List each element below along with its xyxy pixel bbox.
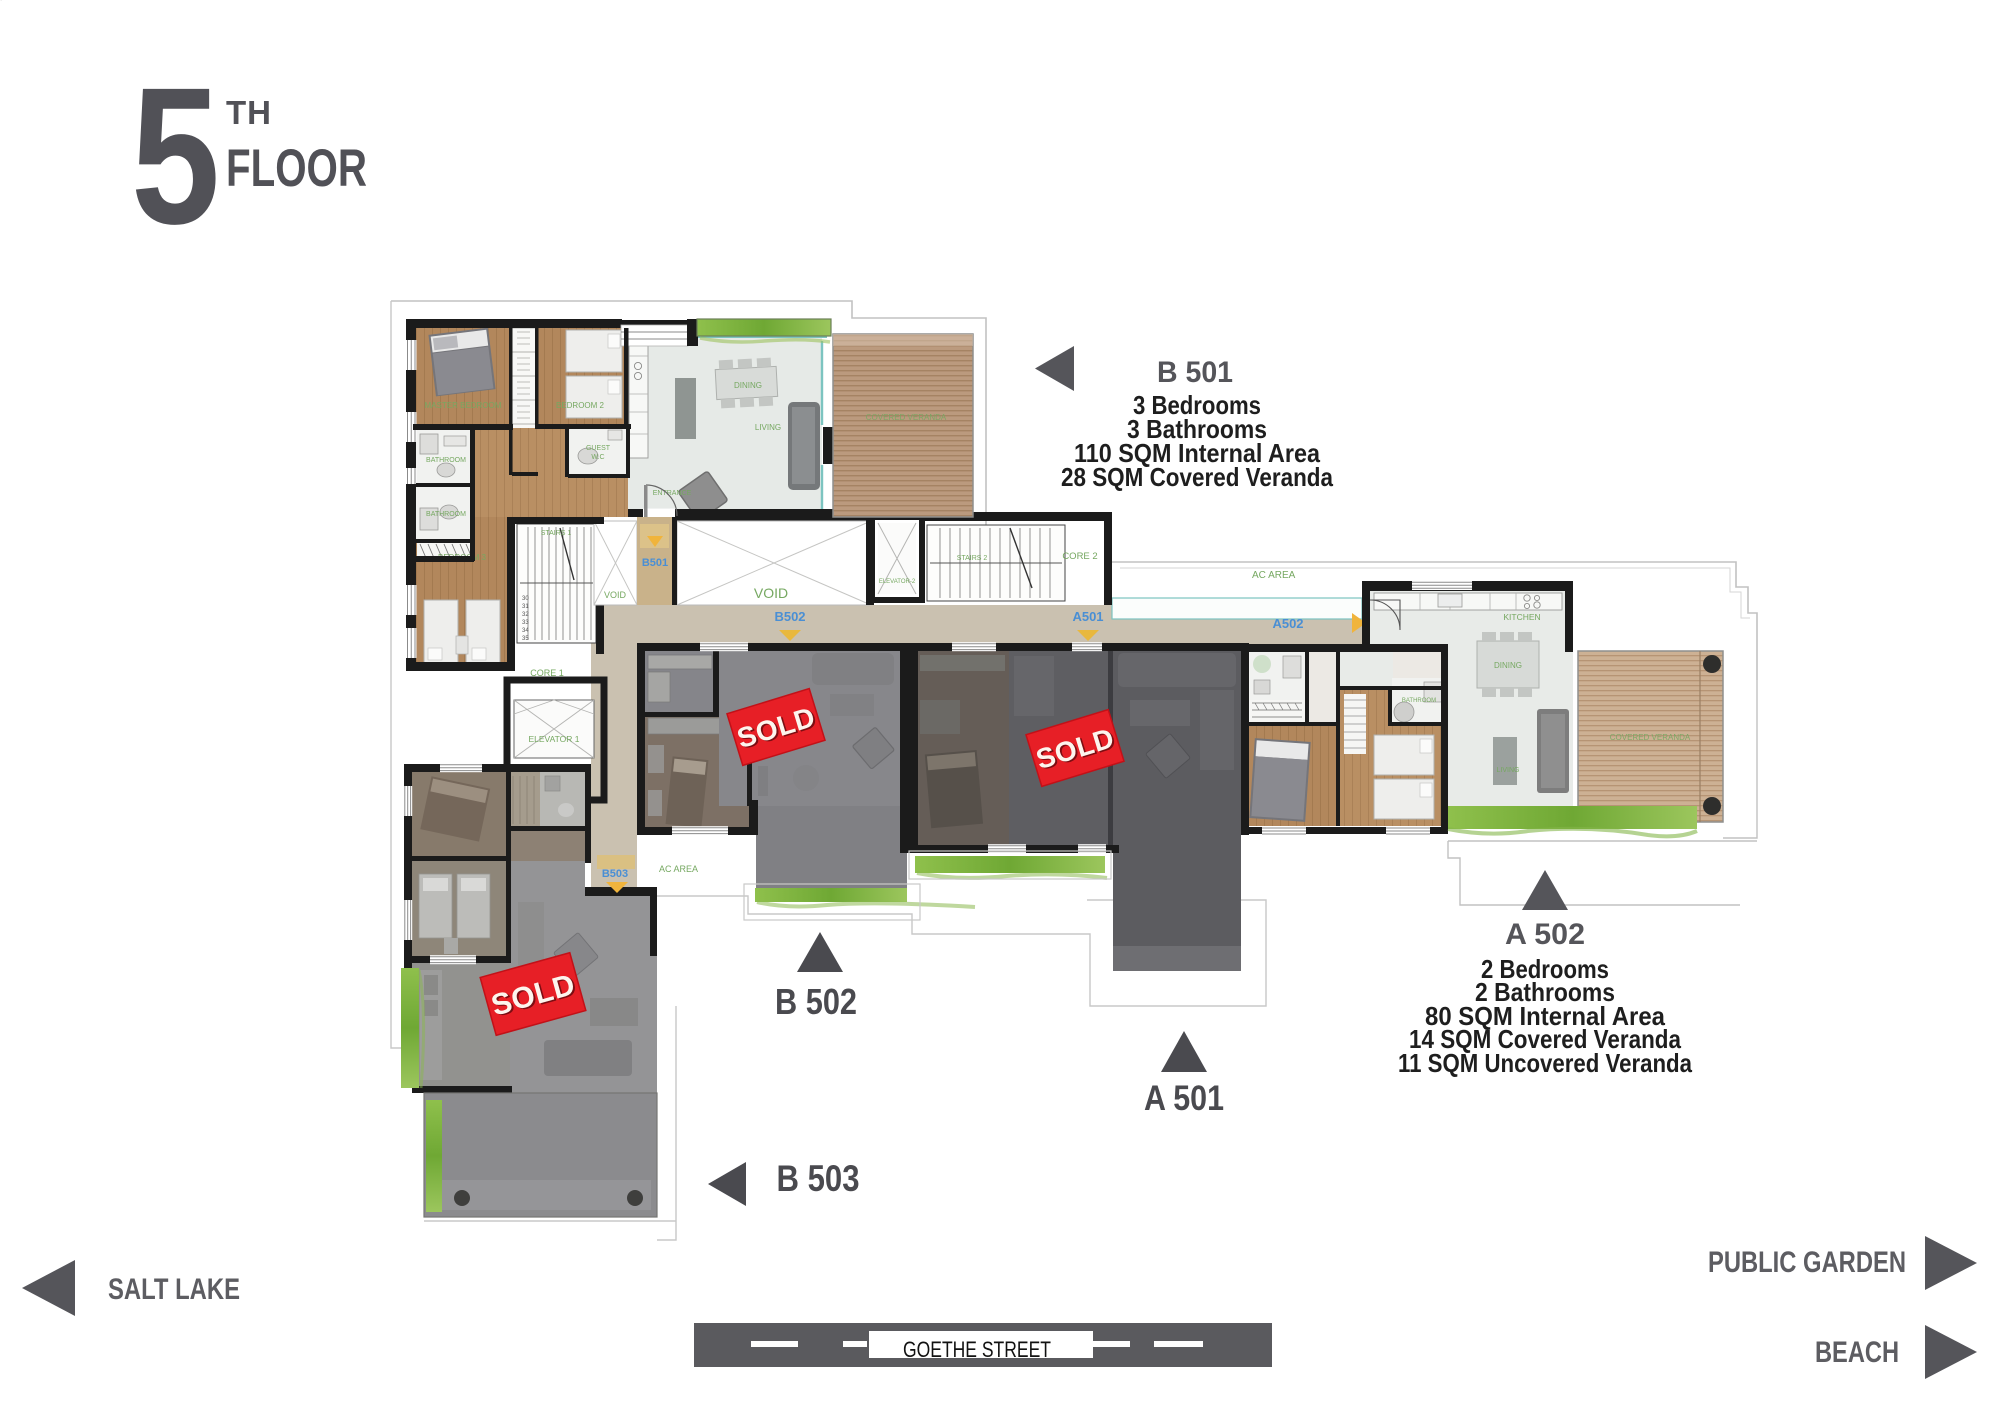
svg-text:B501: B501 — [642, 557, 668, 569]
svg-text:CORE 2: CORE 2 — [1062, 551, 1097, 562]
svg-text:BEDROOM 2: BEDROOM 2 — [556, 401, 605, 410]
svg-text:A 502: A 502 — [1505, 918, 1585, 951]
svg-text:VOID: VOID — [604, 590, 627, 600]
svg-text:B 503: B 503 — [777, 1158, 860, 1199]
svg-text:GUEST: GUEST — [586, 445, 611, 452]
svg-text:DINING: DINING — [1494, 661, 1522, 670]
svg-text:B 501: B 501 — [1157, 356, 1233, 389]
svg-text:VOID: VOID — [754, 585, 788, 601]
svg-text:W.C: W.C — [591, 454, 604, 461]
svg-text:GOETHE STREET: GOETHE STREET — [903, 1337, 1051, 1362]
svg-text:STAIRS 1: STAIRS 1 — [541, 530, 572, 537]
svg-text:AC AREA: AC AREA — [659, 864, 698, 874]
svg-text:KITCHEN: KITCHEN — [1503, 612, 1540, 622]
svg-text:FLOOR: FLOOR — [226, 139, 367, 198]
svg-text:SALT LAKE: SALT LAKE — [108, 1273, 240, 1306]
svg-text:COVERED VERANDA: COVERED VERANDA — [866, 413, 947, 422]
svg-text:32: 32 — [522, 612, 529, 618]
svg-text:33: 33 — [522, 620, 529, 626]
svg-text:A502: A502 — [1272, 616, 1303, 631]
svg-text:BATHROOM: BATHROOM — [426, 457, 466, 464]
svg-text:A 501: A 501 — [1144, 1079, 1224, 1118]
svg-text:ELEVATOR-2: ELEVATOR-2 — [879, 579, 916, 585]
svg-text:ELEVATOR 1: ELEVATOR 1 — [528, 734, 579, 744]
svg-text:5: 5 — [131, 47, 220, 265]
svg-text:B503: B503 — [602, 868, 628, 880]
svg-text:LIVING: LIVING — [1497, 767, 1520, 774]
svg-text:AC AREA: AC AREA — [1252, 570, 1296, 581]
svg-text:11 SQM Uncovered Veranda: 11 SQM Uncovered Veranda — [1398, 1048, 1692, 1078]
svg-text:STAIRS 2: STAIRS 2 — [957, 555, 988, 562]
svg-text:28 SQM Covered Veranda: 28 SQM Covered Veranda — [1061, 462, 1333, 492]
svg-text:COVERED VERANDA: COVERED VERANDA — [1610, 733, 1691, 742]
svg-text:BATHROOM: BATHROOM — [426, 511, 466, 518]
svg-text:B 502: B 502 — [775, 981, 857, 1022]
svg-text:BEACH: BEACH — [1815, 1336, 1899, 1369]
svg-text:MASTER BEDROOM: MASTER BEDROOM — [425, 401, 502, 410]
svg-text:BATHROOM: BATHROOM — [1402, 698, 1436, 704]
svg-text:34: 34 — [522, 628, 529, 634]
svg-text:30: 30 — [522, 596, 529, 602]
svg-text:35: 35 — [522, 636, 529, 642]
svg-text:A501: A501 — [1072, 609, 1103, 624]
svg-text:31: 31 — [522, 604, 529, 610]
svg-text:PUBLIC GARDEN: PUBLIC GARDEN — [1708, 1246, 1906, 1279]
svg-text:ENTRANCE: ENTRANCE — [653, 490, 692, 497]
svg-text:B502: B502 — [774, 609, 805, 624]
svg-text:TH: TH — [226, 94, 272, 131]
svg-text:LIVING: LIVING — [755, 423, 781, 432]
svg-text:DINING: DINING — [734, 381, 762, 390]
